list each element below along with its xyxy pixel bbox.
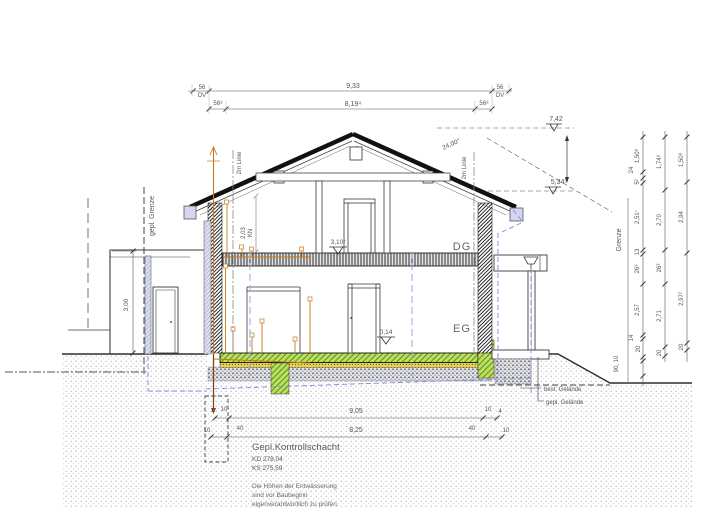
attic-interior (316, 181, 390, 253)
shaft-title: Gepl.Kontrollschacht (252, 442, 340, 453)
chain2-d0: 1,74⁸ (656, 154, 663, 169)
bdim2-a: 10 (204, 428, 211, 434)
ridge-purlin (350, 147, 362, 160)
roof-covering-left (190, 134, 353, 207)
planned-boundary-label: gepl. Grenze (149, 196, 156, 236)
note-line-3: eigenverantwortlich zu prüfen. (252, 501, 339, 508)
chain3-d1: 2,94 (679, 211, 685, 223)
level-eave: 5,34⁵ (551, 179, 568, 186)
note-line-2: sind vor Baubeginn (252, 492, 308, 499)
garage-door-frame (156, 290, 175, 353)
level-dg: 3,10² (331, 239, 347, 246)
bdim1-b: 10 (221, 407, 228, 413)
chain1-d6: 2,57 (635, 304, 641, 316)
bdim1-c: 10 (485, 407, 492, 413)
chain1-d2: 5³ (635, 179, 641, 184)
downpipe-garage (145, 256, 151, 354)
dg-pipe-markers (225, 200, 304, 251)
eg-door-jamb-right (376, 284, 380, 353)
level-ridge: 7,42 (549, 116, 563, 123)
knee-height-label: KN (248, 229, 254, 237)
dg-interior-wall-right (384, 181, 390, 253)
knee-height-value: 2,03 (241, 227, 247, 239)
collar-beam (256, 173, 450, 181)
canopy-foundation (495, 359, 531, 384)
dim-568-right: 56⁸ (479, 100, 489, 107)
section-drawing-canvas: 56 DV 9,33 56 DV 56⁸ 8,19⁴ 56⁸ 7,42 5,34… (0, 0, 721, 520)
terrace-base-slab (492, 350, 549, 359)
chain3-d0: 1,50⁸ (678, 152, 685, 167)
bdim2-c: 40 (469, 426, 476, 432)
dim-933: 9,33 (346, 83, 360, 90)
dim-8194: 8,19⁴ (345, 101, 362, 108)
level-symbols (329, 124, 562, 344)
bdim1-span: 9,05 (349, 408, 363, 415)
room-label-eg: EG (453, 323, 471, 335)
garage-height-label: 3,00 (123, 298, 130, 311)
shaft-ks: KS 275,59 (252, 465, 283, 472)
dg-door-lintel (344, 199, 375, 203)
chain2-d4: 20 (657, 349, 663, 356)
chain1-d3: 2,51⁷ (634, 210, 641, 224)
chain2-d1: 2,70 (657, 214, 663, 226)
eg-door-handle (350, 317, 352, 319)
dim-56dv-left-a: 56 (199, 85, 206, 91)
shaft-kd: KD 278,04 (252, 456, 283, 463)
level-icon-ridge (546, 124, 562, 131)
right-boundary-label: Grenze (616, 228, 623, 251)
dg-door-frame (344, 203, 375, 253)
garage-door-handle (170, 321, 172, 323)
chain1-d7: 14 (629, 334, 635, 341)
yellow-insulation-band (220, 363, 478, 368)
planned-grade-label: gepl. Gelände (546, 400, 584, 406)
right-exterior-wall (478, 203, 492, 353)
chain2-d2: 26³ (657, 264, 663, 273)
existing-grade-label: best. Gelände (544, 387, 582, 393)
chain3-d3: 20 (679, 343, 685, 350)
bdim2-span: 8,25 (349, 427, 363, 434)
bdim2-d: 10 (503, 428, 510, 434)
dg-floor-slab (222, 253, 478, 266)
eg-pipe-markers (224, 264, 313, 341)
eg-cased-opening (247, 287, 300, 353)
level-eg: 0,14 (380, 329, 393, 336)
knee-dim-line (254, 194, 259, 255)
building-section-drawing: 56 DV 9,33 56 DV 56⁸ 8,19⁴ 56⁸ 7,42 5,34… (0, 0, 721, 520)
frost-skirt-left (271, 363, 289, 394)
chain1-d5: 26³ (635, 265, 641, 274)
dg-collector-pipe (224, 204, 310, 257)
two-m-line-left-label: 2m Linie (237, 151, 243, 174)
chain1-d9: 90, 10 (614, 355, 620, 372)
bdim2-b: 40 (237, 426, 244, 432)
dim-568-left: 56⁸ (213, 100, 223, 107)
dim-56dv-left-b: DV (198, 93, 206, 99)
dim-56dv-right-b: DV (496, 93, 504, 99)
dim-56dv-right-a: 56 (497, 85, 504, 91)
roof-angle-label: 24,00° (441, 137, 462, 152)
chain1-d1: 24 (629, 166, 635, 173)
roof-covering-right (353, 134, 516, 207)
roof (184, 134, 523, 221)
gravel-band (208, 367, 492, 381)
chain1-d8: 20 (636, 345, 642, 352)
gutter-left (184, 206, 196, 219)
note-line-1: Die Höhen der Entwässerung (252, 483, 337, 490)
eg-door-lintel (348, 284, 380, 288)
chain2-d3: 2,71 (657, 310, 663, 322)
ground-floor-interior (247, 284, 380, 353)
two-m-line-right-label: 2m Linie (462, 156, 468, 179)
chain1-d4: 13 (635, 248, 641, 255)
canopy-beam (494, 255, 547, 271)
dg-interior-wall-left (316, 181, 322, 253)
garage-structure (68, 198, 208, 354)
building-structure (184, 134, 523, 353)
garage-door (153, 287, 178, 353)
downpipe-house-left (204, 221, 211, 354)
level-icon-eave (545, 187, 561, 194)
room-label-dg: DG (453, 241, 472, 253)
chain1-d0: 1,50⁸ (634, 148, 641, 163)
chain3-d2: 2,97² (679, 292, 685, 306)
